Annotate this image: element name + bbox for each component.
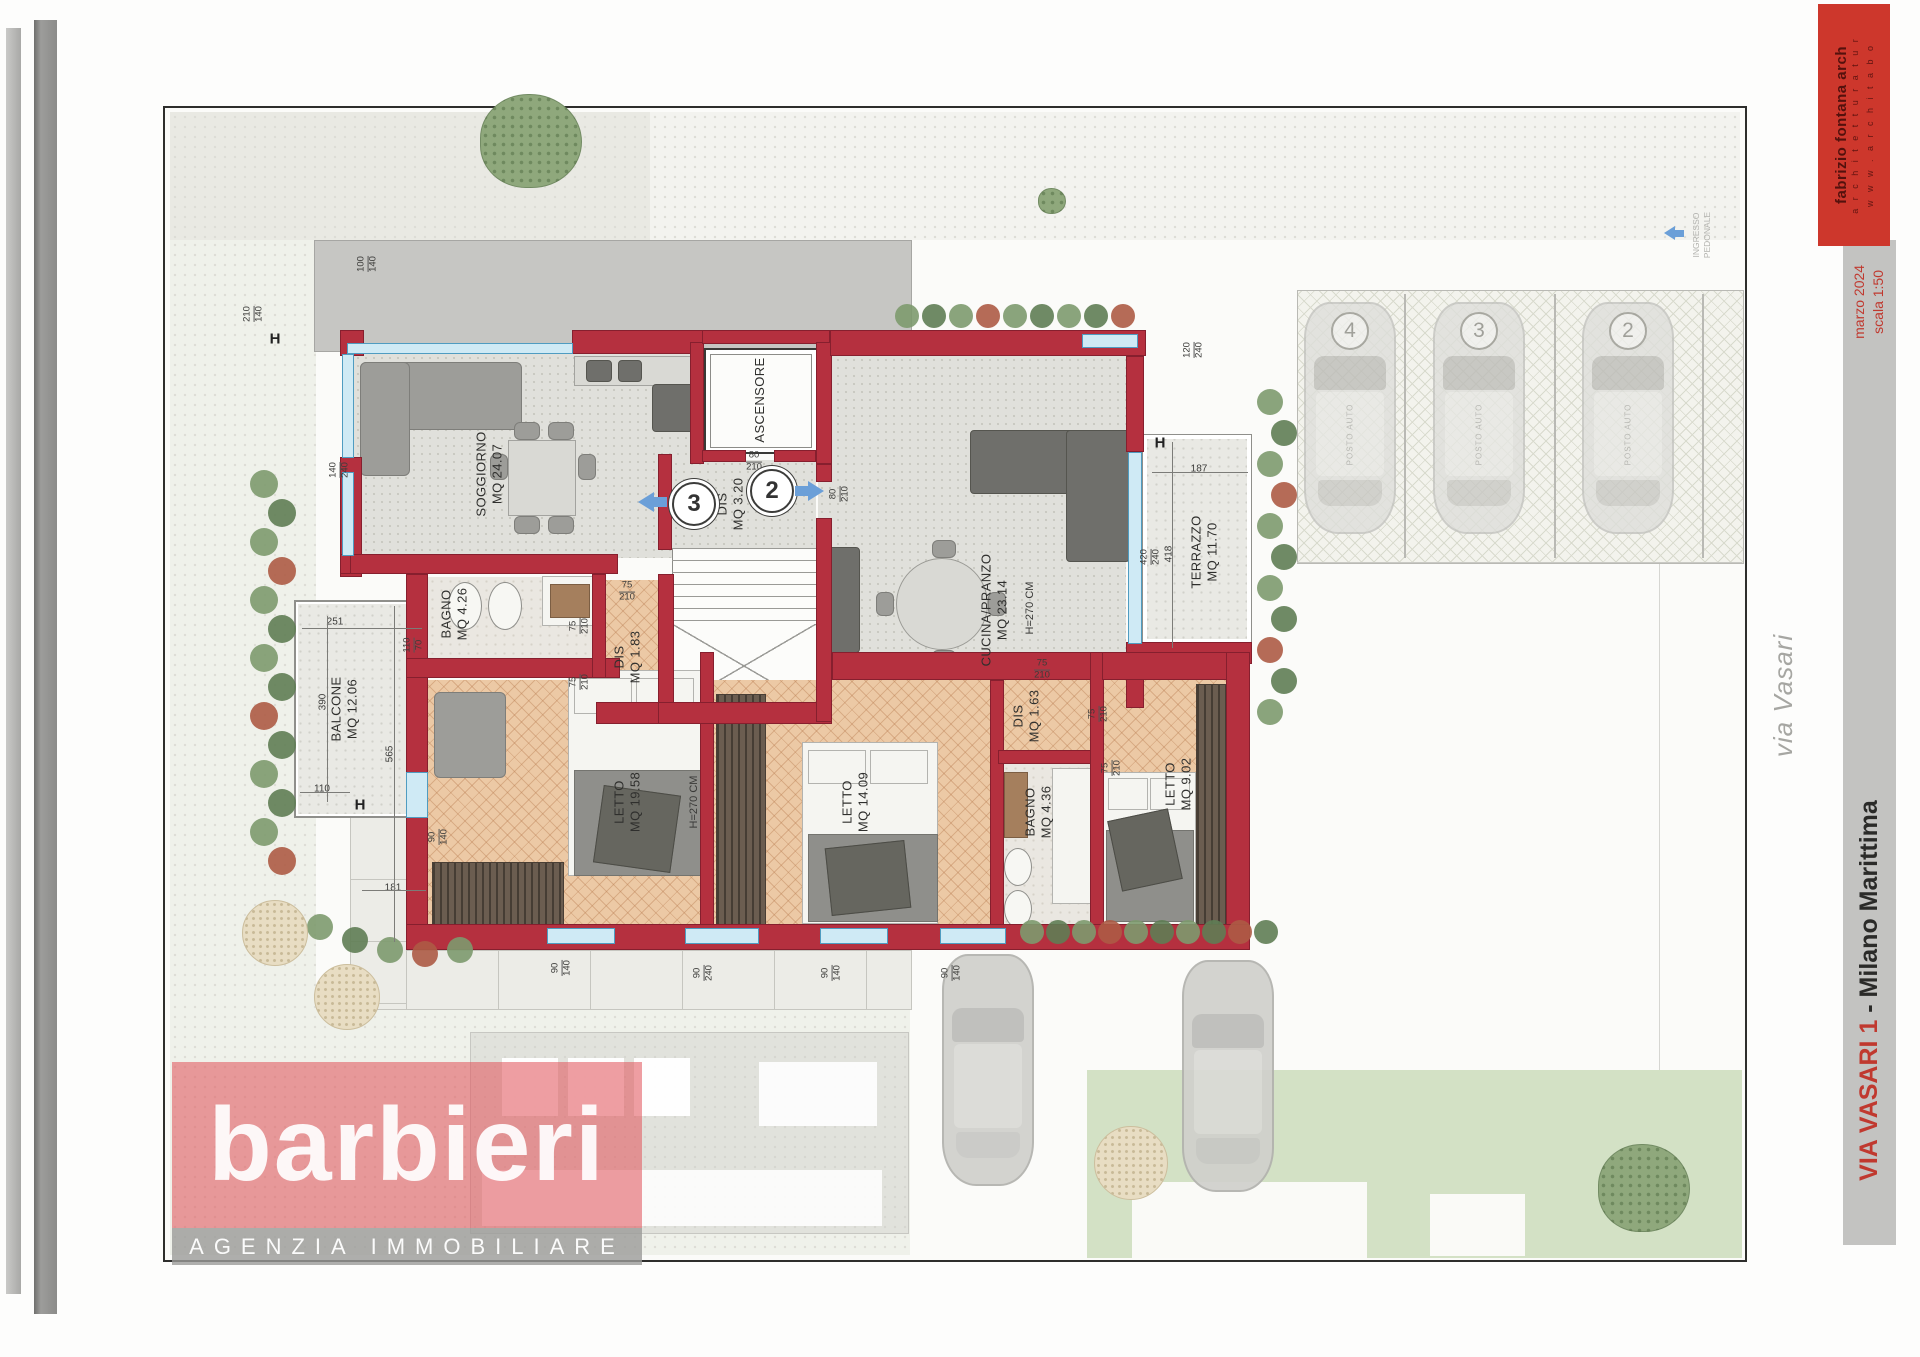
height-note: H=270 CM bbox=[1024, 582, 1036, 635]
dimension-value: 75 bbox=[569, 618, 580, 634]
arrow-stem bbox=[653, 497, 667, 507]
dimension-value: 210 bbox=[580, 674, 592, 690]
section-marker: H bbox=[1155, 435, 1166, 452]
apartment-number-marker: 2 bbox=[750, 469, 794, 513]
architect-website: w w w . a r c h i t a b o bbox=[1865, 36, 1875, 214]
agency-tagline: AGENZIA IMMOBILIARE bbox=[189, 1234, 625, 1260]
dimension-value: 75 bbox=[1088, 706, 1099, 722]
dimension-label: 80210 bbox=[829, 486, 852, 502]
apartment-number-marker: 3 bbox=[672, 482, 716, 526]
dimension-label: 90140 bbox=[941, 965, 964, 981]
room-name: BAGNO bbox=[1022, 786, 1038, 839]
room-name: DIS bbox=[714, 478, 730, 531]
room-name: LETTO bbox=[611, 772, 627, 832]
dimension-line bbox=[1152, 472, 1248, 473]
room-area: MQ 1.83 bbox=[627, 631, 643, 684]
dimension-value: 90 bbox=[821, 965, 832, 981]
dimension-label: 251 bbox=[327, 617, 344, 628]
plan-scale: scala 1:50 bbox=[1869, 265, 1888, 339]
room-label: DISMQ 1.83 bbox=[611, 631, 642, 684]
dimension-value: 210 bbox=[1099, 706, 1111, 722]
pedestrian-entrance-label: INGRESSO PEDONALE bbox=[1678, 196, 1726, 274]
dimension-label: 100140 bbox=[357, 256, 380, 272]
dimension-line bbox=[302, 628, 422, 629]
dimension-value: 210 bbox=[580, 618, 592, 634]
project-street: VIA VASARI 1 bbox=[1855, 1019, 1883, 1180]
dimension-value: 75 bbox=[619, 581, 635, 592]
room-area: MQ 24.07 bbox=[489, 431, 505, 516]
dimension-label: 181 bbox=[385, 883, 402, 894]
room-area: MQ 4.26 bbox=[454, 588, 470, 641]
dimension-value: 140 bbox=[562, 960, 574, 976]
arrow-head bbox=[808, 481, 824, 501]
dimension-value: 210 bbox=[840, 486, 852, 502]
dimension-value: 100 bbox=[357, 256, 368, 272]
dimension-value: 75 bbox=[569, 674, 580, 690]
section-marker: H bbox=[355, 797, 366, 814]
dimension-value: 140 bbox=[832, 965, 844, 981]
dimension-value: 70 bbox=[414, 637, 426, 652]
room-label: BAGNOMQ 4.36 bbox=[1022, 786, 1053, 839]
dimension-value: 240 bbox=[1151, 549, 1163, 565]
dimension-label: 75210 bbox=[569, 674, 592, 690]
dimension-value: 140 bbox=[254, 306, 266, 322]
dimension-label: 90140 bbox=[551, 960, 574, 976]
room-label: DISMQ 3.20 bbox=[714, 478, 745, 531]
room-name: LETTO bbox=[839, 772, 855, 832]
project-city: - Milano Marittima bbox=[1855, 800, 1883, 1019]
room-name: TERRAZZO bbox=[1188, 515, 1204, 588]
dimension-value: 80 bbox=[829, 486, 840, 502]
dimension-label: 90140 bbox=[821, 965, 844, 981]
room-label: ASCENSORE bbox=[752, 357, 768, 442]
dimension-label: 90140 bbox=[428, 829, 451, 845]
agency-logo: barbieri AGENZIA IMMOBILIARE bbox=[172, 1062, 642, 1264]
room-area: MQ 14.09 bbox=[855, 772, 871, 832]
dimension-value: 210 bbox=[243, 306, 254, 322]
dimension-value: 210 bbox=[1112, 760, 1124, 776]
room-name: SOGGIORNO bbox=[473, 431, 489, 516]
dimension-value: 140 bbox=[329, 462, 340, 478]
dimension-value: 140 bbox=[952, 965, 964, 981]
dimension-value: 240 bbox=[1194, 342, 1206, 358]
dimension-value: 210 bbox=[619, 592, 635, 604]
dimension-label: 210140 bbox=[243, 306, 266, 322]
dimension-label: 120240 bbox=[1183, 342, 1206, 358]
section-marker: H bbox=[270, 331, 281, 348]
dimension-value: 240 bbox=[704, 965, 716, 981]
agency-tagline-band: AGENZIA IMMOBILIARE bbox=[172, 1228, 642, 1265]
dimension-value: 110 bbox=[403, 637, 414, 652]
room-label: BAGNOMQ 4.26 bbox=[438, 588, 469, 641]
room-label: BALCONEMQ 12.06 bbox=[328, 677, 359, 742]
dimension-value: 90 bbox=[551, 960, 562, 976]
agency-logo-box: barbieri bbox=[172, 1062, 642, 1228]
date-scale-block: marzo 2024 scala 1:50 bbox=[1840, 242, 1898, 362]
dimension-label: 140240 bbox=[329, 462, 352, 478]
plan-date: marzo 2024 bbox=[1850, 265, 1869, 339]
dimension-value: 120 bbox=[1183, 342, 1194, 358]
room-area: MQ 19.58 bbox=[627, 772, 643, 832]
room-label: DISMQ 1.63 bbox=[1010, 690, 1041, 743]
room-area: MQ 23.14 bbox=[994, 554, 1010, 667]
scan-artifact-bar bbox=[6, 28, 21, 1294]
room-area: MQ 3.20 bbox=[730, 478, 746, 531]
entrance-arrow bbox=[638, 492, 670, 512]
dimension-line bbox=[394, 606, 395, 942]
room-label: CUCINA/PRANZOMQ 23.14 bbox=[978, 554, 1009, 667]
dimension-label: 80210 bbox=[746, 451, 762, 474]
dimension-label: 11070 bbox=[403, 637, 426, 652]
dimension-value: 90 bbox=[428, 829, 439, 845]
room-label: LETTOMQ 14.09 bbox=[839, 772, 870, 832]
dimension-line bbox=[1172, 442, 1173, 648]
room-area: MQ 1.63 bbox=[1026, 690, 1042, 743]
entrance-arrow bbox=[792, 481, 824, 501]
dimension-label: 75210 bbox=[569, 618, 592, 634]
room-name: BALCONE bbox=[328, 677, 344, 742]
arrow-head bbox=[638, 492, 654, 512]
arrow-stem bbox=[795, 486, 809, 496]
room-name: DIS bbox=[1010, 690, 1026, 743]
dimension-label: 75210 bbox=[1101, 760, 1124, 776]
architect-subtitle: a r c h i t e t t u r a t u r bbox=[1850, 36, 1860, 214]
room-name: LETTO bbox=[1162, 758, 1178, 811]
room-name: CUCINA/PRANZO bbox=[978, 554, 994, 667]
dimension-value: 240 bbox=[340, 462, 352, 478]
room-label: LETTOMQ 9.02 bbox=[1162, 758, 1193, 811]
dimension-value: 210 bbox=[1034, 670, 1050, 682]
project-title: VIA VASARI 1 - Milano Marittima bbox=[1840, 740, 1898, 1240]
room-label: SOGGIORNOMQ 24.07 bbox=[473, 431, 504, 516]
architect-name: fabrizio fontana arch bbox=[1833, 36, 1850, 214]
arrow-head bbox=[1664, 226, 1675, 240]
room-name: ASCENSORE bbox=[752, 357, 768, 442]
scan-artifact-bar bbox=[34, 20, 57, 1314]
dimension-value: 140 bbox=[368, 256, 380, 272]
room-name: BAGNO bbox=[438, 588, 454, 641]
scanned-floor-plan-page: POSTO AUTO4POSTO AUTO3POSTO AUTO2 SOGGIO… bbox=[0, 0, 1920, 1357]
room-label: TERRAZZOMQ 11.70 bbox=[1188, 515, 1219, 588]
agency-name: barbieri bbox=[208, 1086, 605, 1205]
dimension-label: 75210 bbox=[619, 581, 635, 604]
architect-stamp: fabrizio fontana arch a r c h i t e t t … bbox=[1818, 4, 1890, 246]
room-label: LETTOMQ 19.58 bbox=[611, 772, 642, 832]
street-name-label: via Vasari bbox=[1752, 590, 1816, 800]
dimension-value: 90 bbox=[693, 965, 704, 981]
room-name: DIS bbox=[611, 631, 627, 684]
dimension-value: 75 bbox=[1034, 659, 1050, 670]
dimension-value: 90 bbox=[941, 965, 952, 981]
dimension-line bbox=[362, 890, 426, 891]
dimension-label: 90240 bbox=[693, 965, 716, 981]
dimension-value: 80 bbox=[746, 451, 762, 462]
dimension-label: 420240 bbox=[1140, 549, 1163, 565]
room-area: MQ 4.36 bbox=[1038, 786, 1054, 839]
dimension-label: 75210 bbox=[1088, 706, 1111, 722]
dimension-line bbox=[327, 616, 328, 802]
height-note: H=270 CM bbox=[688, 776, 700, 829]
dimension-value: 420 bbox=[1140, 549, 1151, 565]
room-area: MQ 11.70 bbox=[1204, 515, 1220, 588]
dimension-value: 140 bbox=[439, 829, 451, 845]
dimension-line bbox=[300, 792, 350, 793]
room-area: MQ 9.02 bbox=[1178, 758, 1194, 811]
dimension-value: 75 bbox=[1101, 760, 1112, 776]
dimension-label: 75210 bbox=[1034, 659, 1050, 682]
room-area: MQ 12.06 bbox=[344, 677, 360, 742]
